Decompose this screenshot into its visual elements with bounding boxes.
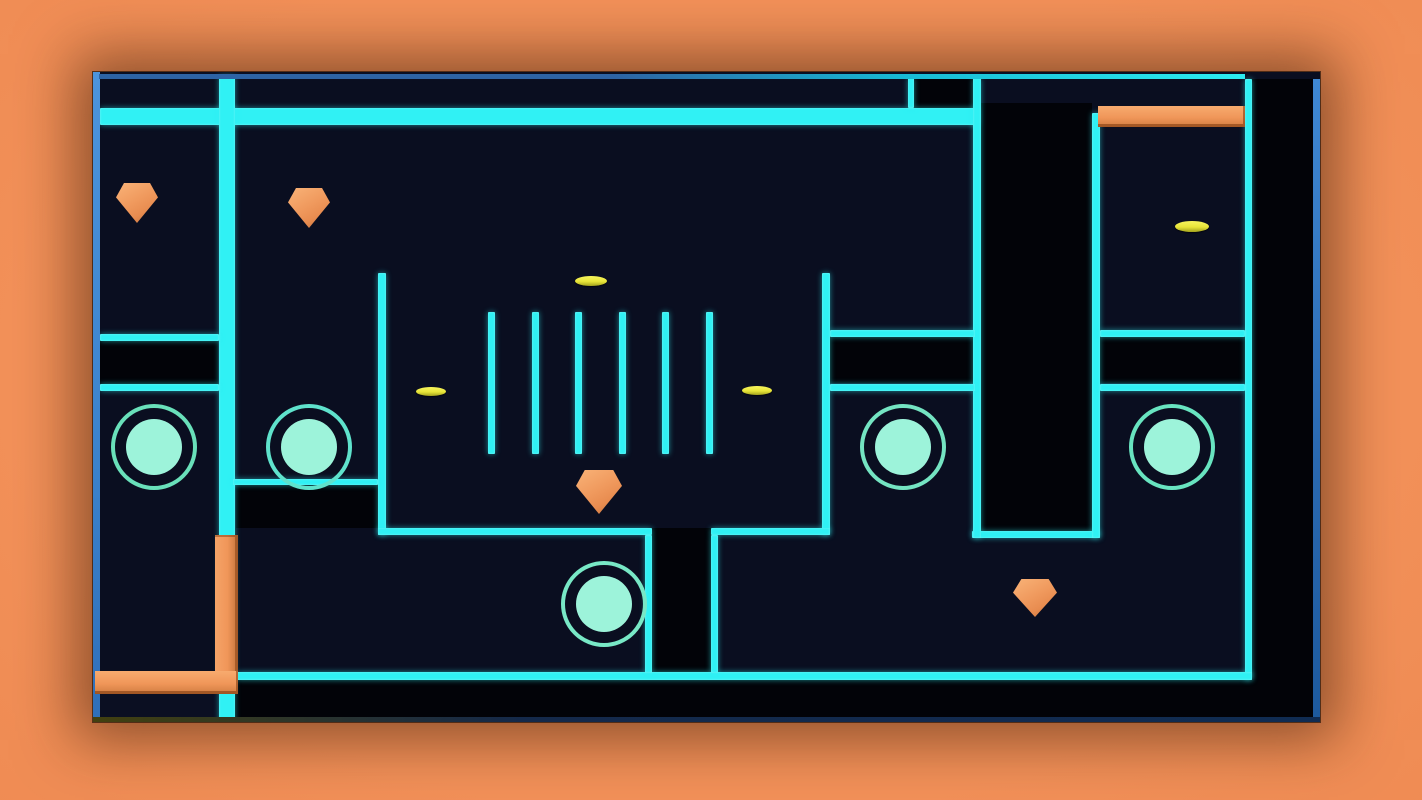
floor-patch [100,694,219,718]
pit [913,78,975,108]
frame-edge-bottom [93,717,1320,722]
orange-bar-top-right [1098,106,1245,127]
cyan-wall [973,78,981,538]
comb-bar [532,312,539,454]
pit-pillar-top [980,103,1092,532]
cyan-wall [711,528,830,535]
cyan-wall [711,535,718,673]
frame-edge-left [93,72,100,722]
comb-bar [488,312,495,454]
hazard-pentagon[interactable] [116,183,158,223]
hazard-pentagon[interactable] [576,470,622,514]
portal-pad[interactable] [1129,404,1215,490]
portal-pad[interactable] [111,404,197,490]
comb-bar [619,312,626,454]
cyan-wall [822,273,830,535]
pit-right-band [1252,79,1315,718]
pit [100,340,218,384]
background [0,0,1422,800]
comb-bar [662,312,669,454]
cyan-wall [378,273,386,535]
pit-pillar-bottom [652,528,711,673]
cyan-wall [1245,79,1252,680]
cyan-wall [830,330,975,337]
game-scene [93,72,1320,722]
cyan-wall [100,384,219,391]
portal-pad[interactable] [561,561,647,647]
cyan-wall [1100,384,1245,391]
orange-bar-vertical [215,535,238,676]
cyan-wall [908,78,914,108]
coin-disc[interactable] [742,386,772,395]
comb-bar [575,312,582,454]
portal-pad[interactable] [860,404,946,490]
cyan-wall [1100,330,1245,337]
pit [830,336,975,383]
orange-bar-bottom-left [95,671,238,694]
cyan-wall [830,384,975,391]
frame-edge-right [1313,79,1320,718]
pit [1100,336,1245,383]
coin-disc[interactable] [1175,221,1209,232]
cyan-wall [237,672,1252,680]
coin-disc[interactable] [575,276,607,286]
comb-bar [706,312,713,454]
frame-edge-top [99,74,1245,79]
game-viewport[interactable] [93,72,1320,722]
cyan-wall [100,334,219,341]
cyan-wall [972,531,1100,538]
pit [236,484,378,528]
cyan-wall [1092,113,1100,538]
pit-bottom-band [100,680,1313,718]
hazard-pentagon[interactable] [1013,579,1057,617]
coin-disc[interactable] [416,387,446,396]
cyan-wall [378,528,652,535]
portal-pad[interactable] [266,404,352,490]
hazard-pentagon[interactable] [288,188,330,228]
